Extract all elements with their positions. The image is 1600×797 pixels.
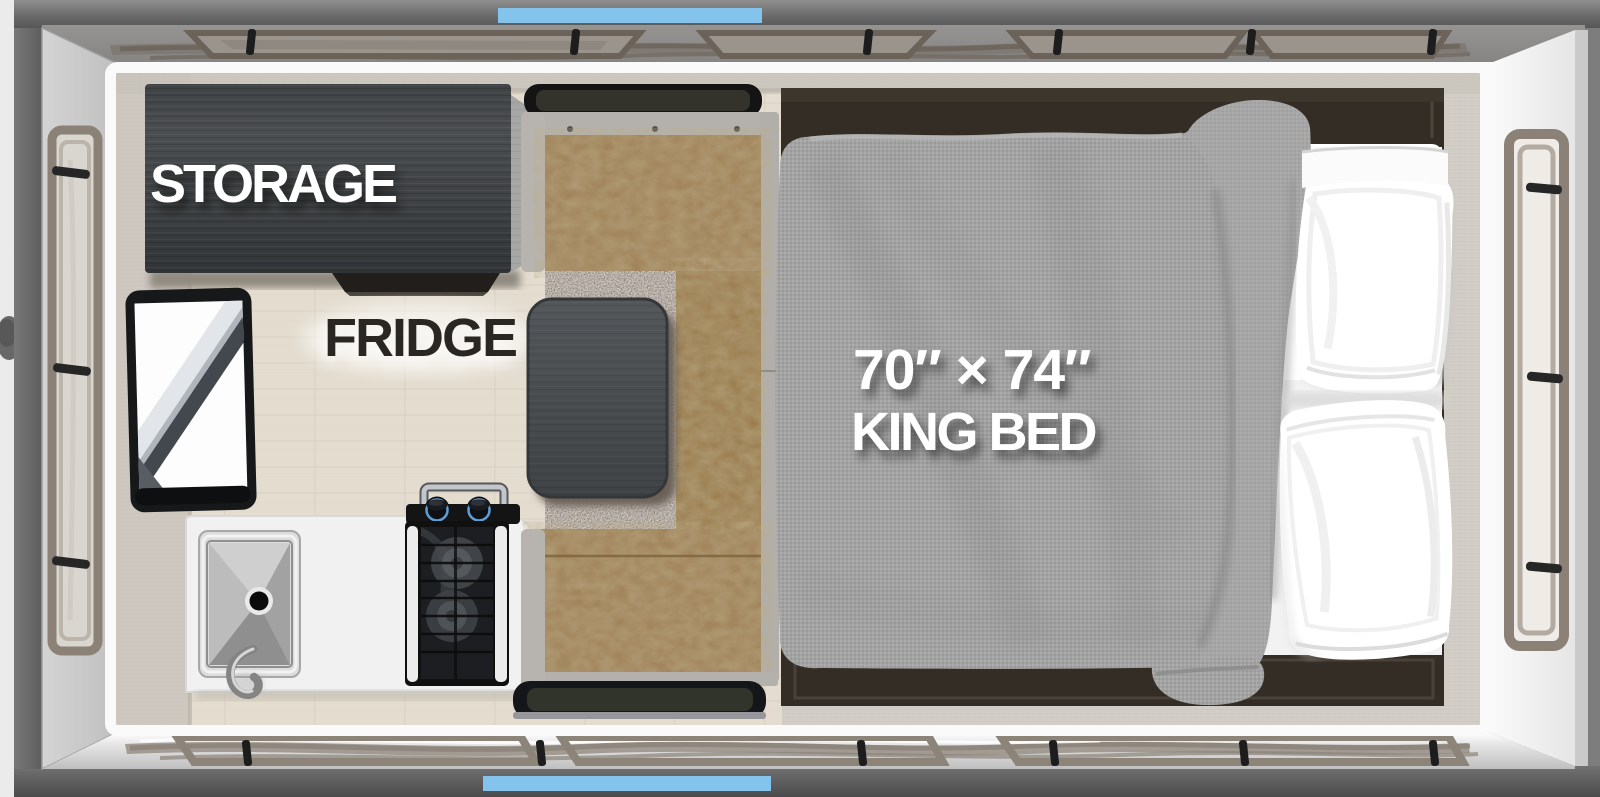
svg-text:FRIDGE: FRIDGE xyxy=(324,308,516,368)
svg-text:KING BED: KING BED xyxy=(851,402,1096,462)
svg-text:STORAGE: STORAGE xyxy=(150,154,396,214)
svg-text:70″ × 74″: 70″ × 74″ xyxy=(853,338,1091,402)
